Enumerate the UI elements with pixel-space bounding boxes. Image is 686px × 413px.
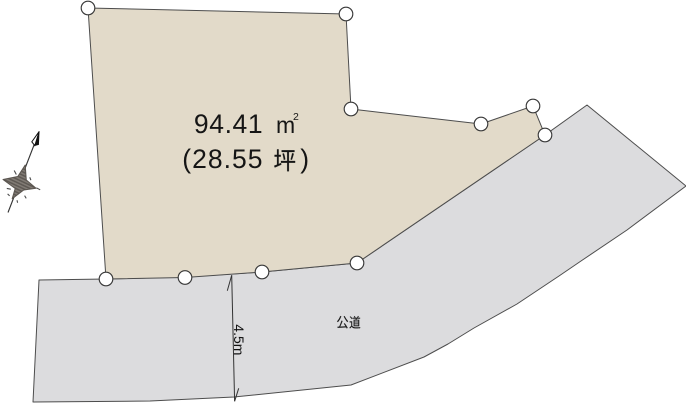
- svg-text:94.41: 94.41: [194, 109, 263, 139]
- svg-text:4.5m: 4.5m: [231, 324, 247, 355]
- svg-text:): ): [300, 144, 309, 174]
- svg-text:(28.55: (28.55: [182, 144, 263, 174]
- svg-text:2: 2: [293, 111, 299, 123]
